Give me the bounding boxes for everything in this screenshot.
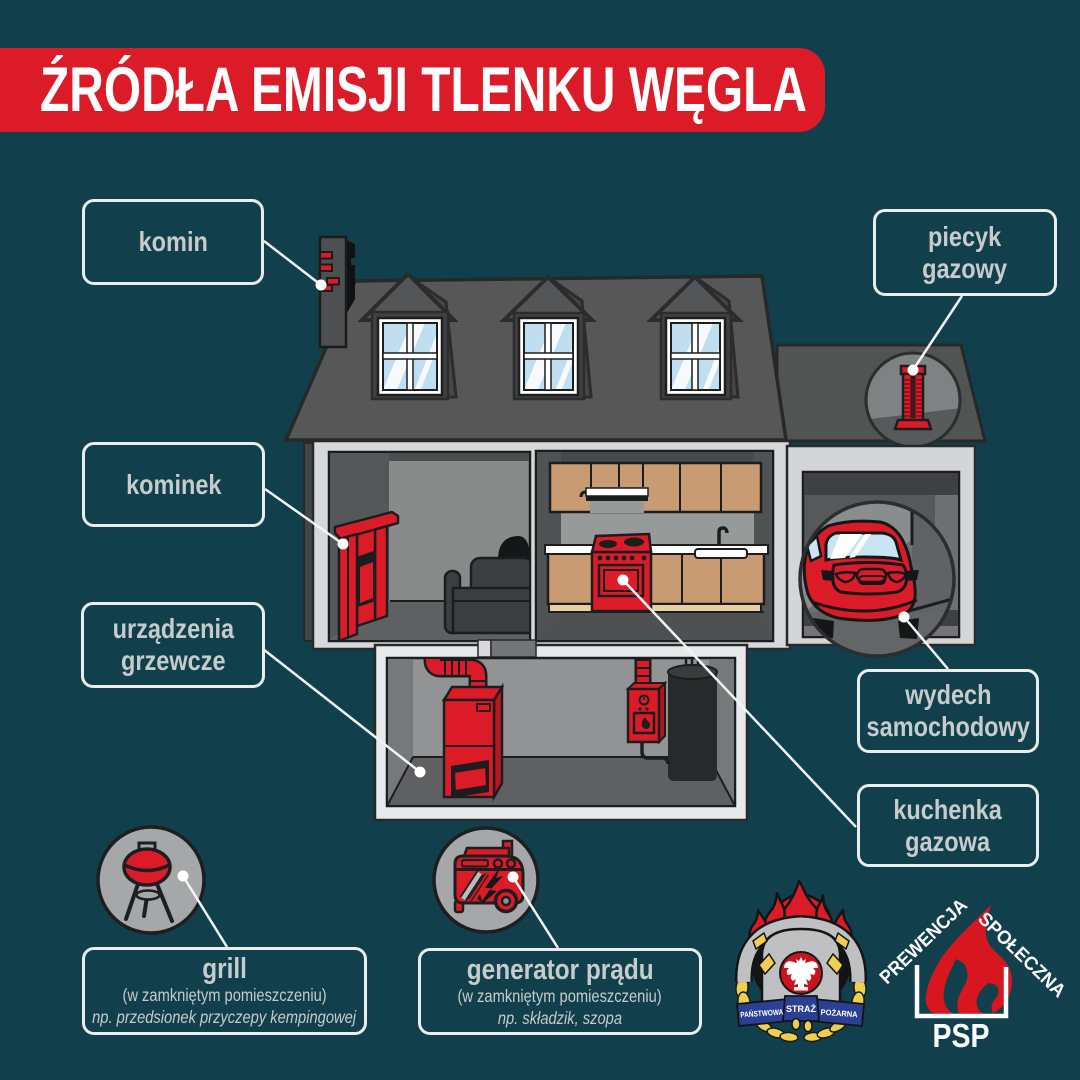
svg-text:PSP: PSP — [933, 1017, 990, 1054]
svg-text:STRAŻ: STRAŻ — [786, 1004, 816, 1015]
